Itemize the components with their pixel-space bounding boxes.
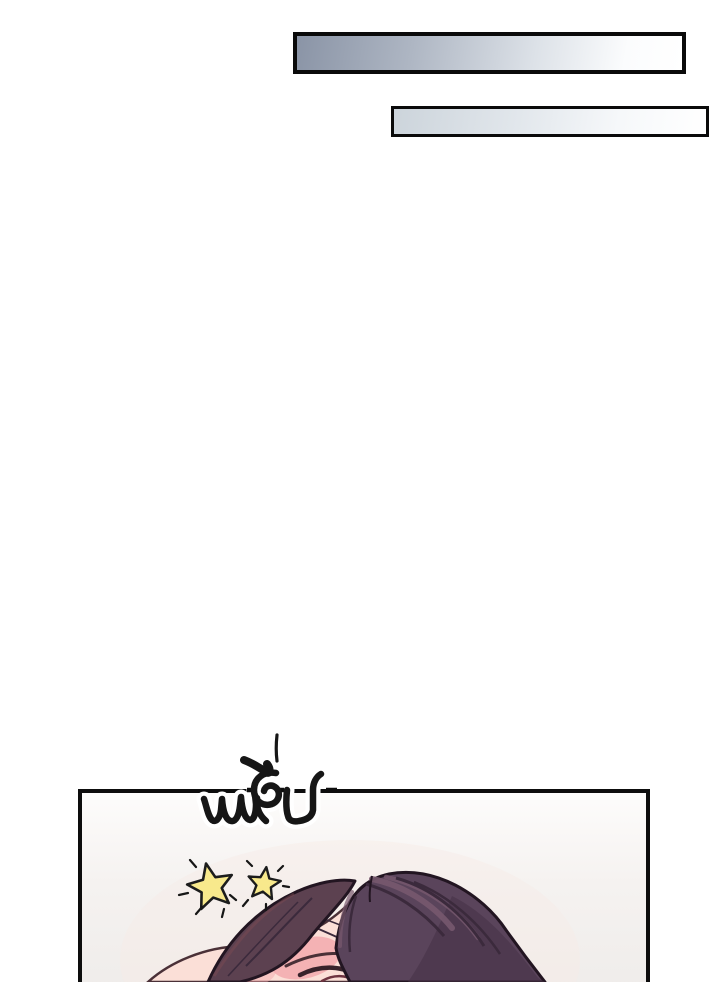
sfx-tone-mark xyxy=(276,735,277,761)
webtoon-page xyxy=(0,0,720,982)
gradient-bar-top xyxy=(293,32,686,74)
comic-panel xyxy=(78,789,650,982)
sfx-vowel-stroke xyxy=(244,760,270,773)
gradient-bar-second xyxy=(391,106,709,137)
